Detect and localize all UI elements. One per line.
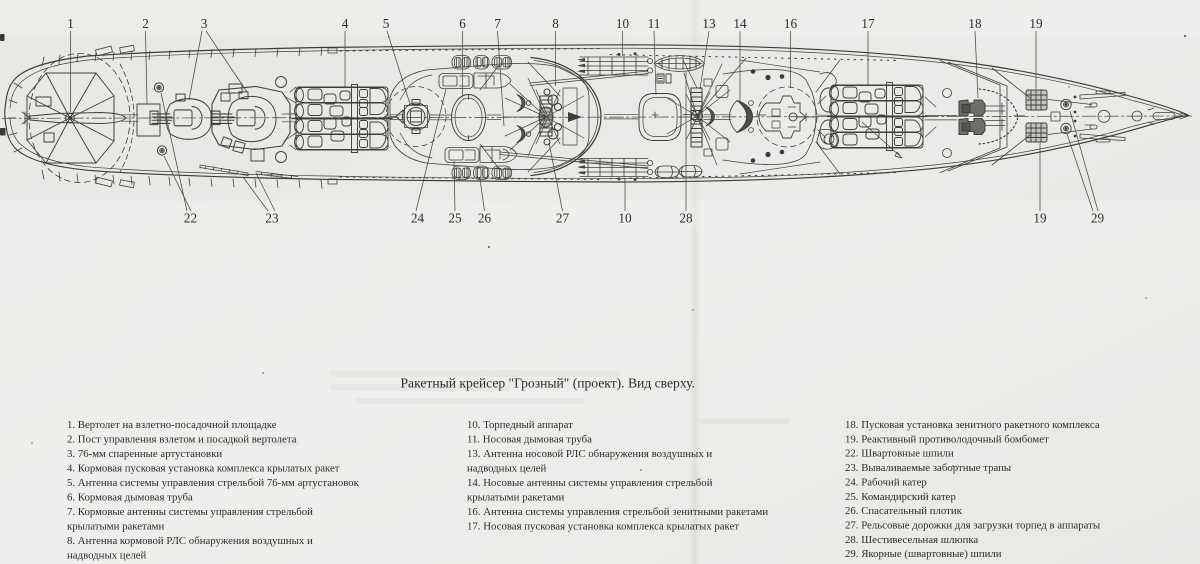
svg-text:19: 19 [1029, 16, 1043, 31]
svg-text:6. Кормовая дымовая труба: 6. Кормовая дымовая труба [67, 492, 193, 504]
svg-text:13. Антенна носовой РЛС обнару: 13. Антенна носовой РЛС обнаружения возд… [467, 448, 712, 460]
svg-text:1: 1 [67, 16, 74, 31]
svg-text:5. Антенна системы управления: 5. Антенна системы управления стрельбой … [67, 477, 360, 489]
svg-text:28. Шестивесельная шлюпка: 28. Шестивесельная шлюпка [845, 534, 978, 546]
svg-text:3: 3 [201, 16, 208, 31]
svg-text:22: 22 [184, 211, 197, 226]
svg-text:27. Рельсовые дорожки для загр: 27. Рельсовые дорожки для загрузки торпе… [845, 520, 1100, 532]
svg-text:27: 27 [556, 211, 570, 226]
svg-text:23: 23 [265, 211, 279, 226]
svg-text:Ракетный крейсер "Грозный" (пр: Ракетный крейсер "Грозный" (проект). Вид… [401, 376, 695, 392]
svg-text:4. Кормовая пусковая установка: 4. Кормовая пусковая установка комплекса… [67, 463, 340, 475]
svg-text:10. Торпедный аппарат: 10. Торпедный аппарат [467, 419, 573, 431]
svg-text:14: 14 [733, 16, 747, 31]
svg-text:надводных целей: надводных целей [467, 463, 547, 475]
svg-text:16. Антенна системы управления: 16. Антенна системы управления стрельбой… [467, 506, 768, 518]
svg-text:24: 24 [411, 211, 425, 226]
svg-text:1. Вертолет на взлетно-посадоч: 1. Вертолет на взлетно-посадочной площад… [67, 419, 277, 431]
svg-text:7. Кормовые антенны системы уп: 7. Кормовые антенны системы управления с… [67, 506, 313, 518]
svg-text:26: 26 [478, 211, 492, 226]
svg-text:6: 6 [459, 16, 466, 31]
svg-text:надводных целей: надводных целей [67, 550, 147, 562]
svg-text:18: 18 [968, 16, 982, 31]
svg-text:25: 25 [448, 211, 462, 226]
svg-text:28: 28 [679, 211, 693, 226]
svg-text:19. Реактивный противолодочный: 19. Реактивный противолодочный бомбомет [845, 433, 1049, 445]
svg-text:17: 17 [861, 16, 875, 31]
svg-text:18. Пусковая установка зенитно: 18. Пусковая установка зенитного ракетно… [845, 419, 1100, 431]
svg-text:29: 29 [1091, 211, 1105, 226]
svg-text:17. Носовая пусковая установка: 17. Носовая пусковая установка комплекса… [467, 521, 739, 533]
svg-text:25. Командирский катер: 25. Командирский катер [845, 491, 956, 503]
svg-text:23. Вываливаемые забортные тра: 23. Вываливаемые забортные трапы [845, 462, 1011, 474]
svg-text:24. Рабочий катер: 24. Рабочий катер [845, 476, 927, 488]
svg-text:13: 13 [702, 16, 716, 31]
svg-text:14. Носовые антенны системы уп: 14. Носовые антенны системы управления с… [467, 477, 713, 489]
svg-text:крылатыми ракетами: крылатыми ракетами [67, 521, 165, 533]
svg-text:5: 5 [383, 16, 390, 31]
svg-text:2. Пост управления взлетом и п: 2. Пост управления взлетом и посадкой ве… [67, 434, 297, 446]
svg-text:2: 2 [142, 16, 149, 31]
svg-text:11: 11 [648, 16, 661, 31]
svg-text:10: 10 [618, 211, 632, 226]
svg-text:8. Антенна кормовой РЛС обнару: 8. Антенна кормовой РЛС обнаружения возд… [67, 535, 313, 547]
svg-text:11. Носовая дымовая труба: 11. Носовая дымовая труба [467, 434, 592, 446]
svg-text:19: 19 [1033, 211, 1047, 226]
svg-text:16: 16 [784, 16, 798, 31]
svg-text:крылатыми ракетами: крылатыми ракетами [467, 492, 565, 504]
svg-text:26. Спасательный плотик: 26. Спасательный плотик [845, 505, 963, 517]
svg-text:22. Швартовные шпили: 22. Швартовные шпили [845, 448, 954, 460]
svg-text:7: 7 [494, 16, 501, 31]
svg-text:3. 76-мм спаренные артустановк: 3. 76-мм спаренные артустановки [67, 448, 222, 460]
svg-text:29. Якорные (швартовные) шпили: 29. Якорные (швартовные) шпили [845, 548, 1002, 560]
svg-text:10: 10 [616, 16, 630, 31]
svg-text:8: 8 [552, 16, 559, 31]
svg-text:4: 4 [342, 16, 349, 31]
